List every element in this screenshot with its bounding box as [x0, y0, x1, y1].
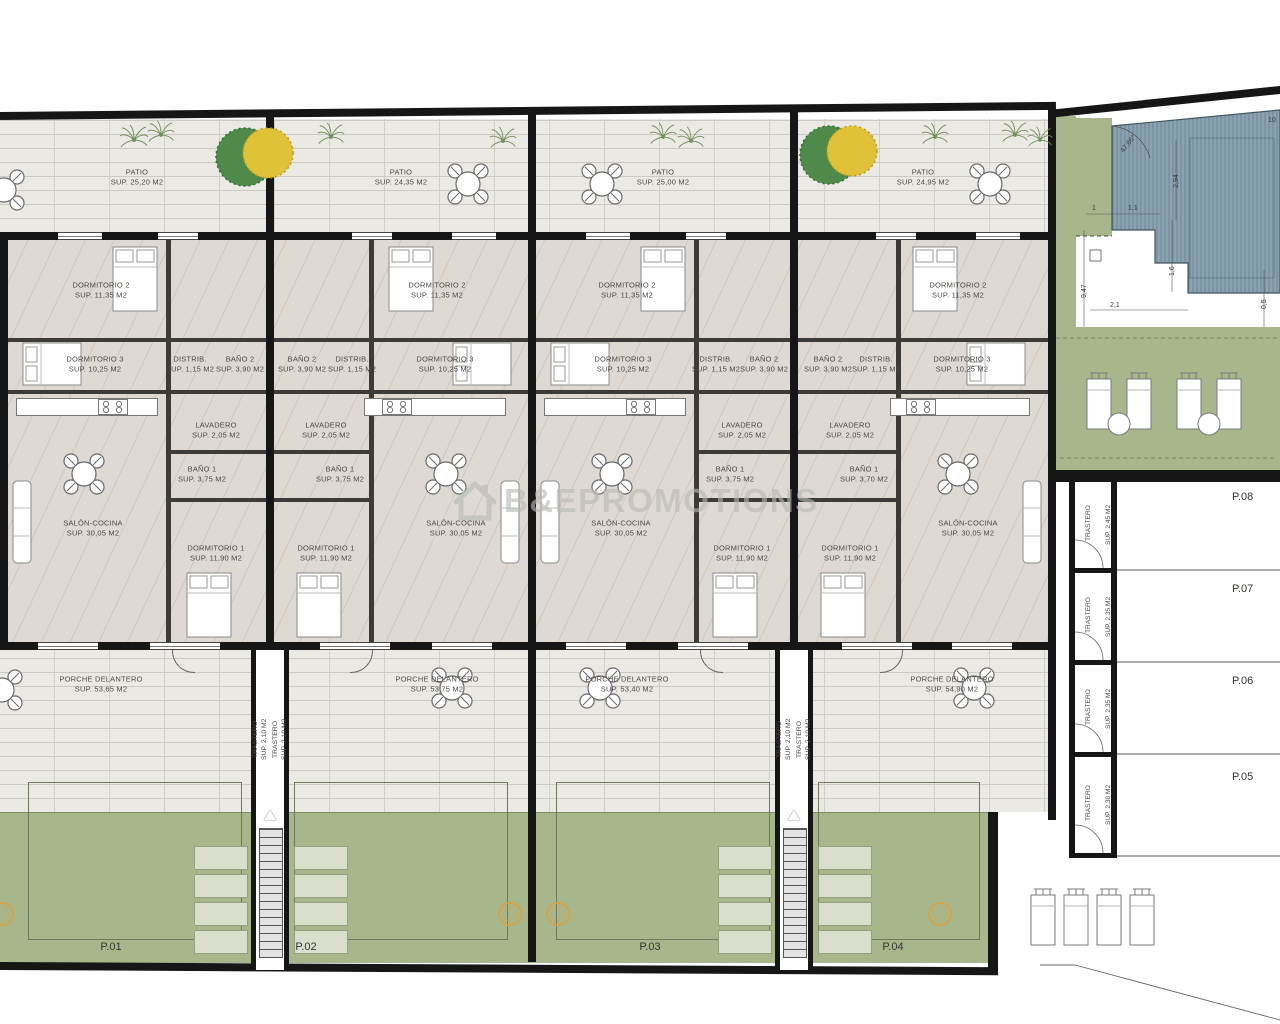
- plot-boundary-diagonal: [1075, 965, 1280, 1020]
- wall-u1-h2: [8, 390, 171, 394]
- window-u3-porch-1: [566, 642, 626, 650]
- storage-label-stair1-b: TRASTEROSUP. 2,10 M2: [271, 664, 289, 814]
- bed-icon: [388, 246, 434, 312]
- green-strip-top: [1076, 118, 1112, 236]
- kitchen-counter: [16, 398, 158, 416]
- room-label-salon-u4: SALÓN-COCINASUP. 30,05 M2: [938, 518, 998, 538]
- planter-box: [194, 874, 248, 898]
- window-u2-patio-1: [352, 232, 392, 240]
- sun-lounger-icon: [1064, 889, 1088, 945]
- dim-pool-step: 1,6: [1169, 266, 1176, 276]
- wall-left-edge: [0, 232, 8, 650]
- wall-u4-h5: [798, 450, 896, 454]
- room-label-dorm3-u2: DORMITORIO 3SUP. 10,25 M2: [416, 354, 473, 374]
- wall-storage-div3: [1069, 752, 1117, 757]
- window-u3-patio-2: [686, 232, 726, 240]
- dim-offset-one-one: 1,1: [1128, 205, 1138, 212]
- wall-storage-div1: [1069, 568, 1117, 573]
- room-label-bano2-u3: BAÑO 2SUP. 3,90 M2: [740, 354, 788, 374]
- plot-label-p02: P.02: [295, 941, 316, 953]
- right-zone: 10 47,66° 2,94 1 1,1 1,6 9,47 2,1 0,5 9,…: [1000, 80, 1280, 1024]
- storage-label-stair2-a: TRASTEROSUP. 2,10 M2: [775, 664, 793, 814]
- room-label-patio-u2: PATIOSUP. 24,35 M2: [375, 167, 428, 187]
- kitchen-counter: [544, 398, 686, 416]
- wall-core-u2: [369, 240, 374, 642]
- stove-icon: [98, 399, 128, 415]
- sun-lounger-icon: [1217, 373, 1241, 429]
- sofa-icon: [12, 480, 32, 564]
- room-label-patio-u3: PATIOSUP. 25,00 M2: [637, 167, 690, 187]
- bed-icon: [912, 246, 958, 312]
- wall-bottom: [0, 962, 998, 975]
- palm-icon: [146, 120, 176, 150]
- stairwell-2: TRASTEROSUP. 2,10 M2 TRASTEROSUP. 2,10 M…: [775, 650, 813, 970]
- room-label-distrib-u4: DISTRIB.SUP. 1,15 M2: [852, 354, 900, 374]
- palm-icon: [488, 126, 518, 156]
- room-label-lavadero-u1: LAVADEROSUP. 2,05 M2: [192, 420, 240, 440]
- wall-storage-top: [1048, 470, 1280, 482]
- dim-side-width: 2,1: [1110, 302, 1120, 309]
- planter-box: [194, 930, 248, 954]
- window-u1-patio-2: [158, 232, 198, 240]
- room-label-distrib-u2: DISTRIB.SUP. 1,15 M2: [328, 354, 376, 374]
- bed-icon: [186, 572, 232, 638]
- wall-u3-h2: [536, 390, 699, 394]
- stove-icon: [382, 399, 412, 415]
- wall-u1-h4: [166, 390, 266, 394]
- dining-table-icon: [62, 452, 106, 496]
- wall-core-u1: [166, 240, 171, 642]
- window-u2-porch-1: [320, 642, 390, 650]
- wall-garden-right: [988, 812, 998, 968]
- room-label-distrib-u3: DISTRIB.SUP. 1,15 M2: [692, 354, 740, 374]
- bed-icon: [112, 246, 158, 312]
- window-u1-patio-1: [58, 232, 102, 240]
- dim-side-depth: 9,47: [1081, 284, 1088, 298]
- sun-lounger-icon: [1087, 373, 1111, 429]
- storage-sup-p05: SUP. 2,30 M2: [1105, 784, 1112, 825]
- wall-core-u3: [694, 240, 699, 642]
- wall-unit-divider-1: [266, 114, 274, 642]
- room-label-dorm3-u1: DORMITORIO 3SUP. 10,25 M2: [66, 354, 123, 374]
- stove-icon: [906, 399, 936, 415]
- window-u1-porch-1: [38, 642, 98, 650]
- sun-lounger-icon: [1127, 373, 1151, 429]
- palm-icon: [1026, 126, 1054, 154]
- room-label-dorm2-u1: DORMITORIO 2SUP. 11,35 M2: [72, 280, 129, 300]
- room-label-dorm1-u4: DORMITORIO 1SUP. 11,90 M2: [821, 543, 878, 563]
- room-label-dorm1-u3: DORMITORIO 1SUP. 11,90 M2: [713, 543, 770, 563]
- planter-box: [294, 846, 348, 870]
- room-label-porche-u4: PORCHE DELANTEROSUP. 54,90 M2: [910, 674, 993, 694]
- sofa-icon: [1022, 480, 1042, 564]
- palm-icon: [316, 122, 346, 152]
- room-label-bano2-u2: BAÑO 2SUP. 3,90 M2: [278, 354, 326, 374]
- wall-u2-h6: [274, 498, 374, 502]
- planter-box: [718, 874, 772, 898]
- patio-table-icon: [580, 162, 624, 206]
- storage-label-stair2-b: TRASTEROSUP. 2,10 M2: [795, 664, 813, 814]
- side-table-icon: [1108, 413, 1130, 435]
- dining-table-icon: [936, 452, 980, 496]
- planter-box: [818, 874, 872, 898]
- room-label-dorm1-u1: DORMITORIO 1SUP. 11,90 M2: [187, 543, 244, 563]
- room-label-distrib-u1: DISTRIB.SUP. 1,15 M2: [166, 354, 214, 374]
- room-label-bano1-u1: BAÑO 1SUP. 3,75 M2: [178, 464, 226, 484]
- wall-u1-h3: [166, 338, 266, 342]
- storage-sup-p08: SUP. 2,45 M2: [1105, 504, 1112, 545]
- palm-icon: [648, 122, 678, 152]
- room-label-porche-u1: PORCHE DELANTEROSUP. 53,65 M2: [59, 674, 142, 694]
- room-label-dorm1-u2: DORMITORIO 1SUP. 11,90 M2: [297, 543, 354, 563]
- wall-u2-h2: [374, 390, 528, 394]
- room-label-lavadero-u2: LAVADEROSUP. 2,05 M2: [302, 420, 350, 440]
- wall-storage-bottom: [1069, 853, 1117, 858]
- planter-box: [294, 902, 348, 926]
- planter-box: [718, 930, 772, 954]
- storage-sup-p06: SUP. 2,35 M2: [1105, 688, 1112, 729]
- planter-box: [818, 902, 872, 926]
- garden-marker-icon: [928, 902, 952, 926]
- room-label-salon-u3: SALÓN-COCINASUP. 30,05 M2: [591, 518, 651, 538]
- porch-table-icon: [0, 668, 24, 712]
- storage-name-p07: TRASTERO: [1085, 597, 1092, 633]
- window-u3-porch-2: [678, 642, 748, 650]
- room-label-lavadero-u3: LAVADEROSUP. 2,05 M2: [718, 420, 766, 440]
- window-u3-patio-1: [586, 232, 630, 240]
- wall-u4-h6: [798, 498, 896, 502]
- dining-table-icon: [424, 452, 468, 496]
- planter-box: [818, 930, 872, 954]
- sun-lounger-icon: [1177, 373, 1201, 429]
- wall-u3-h3: [694, 338, 790, 342]
- room-label-bano1-u3: BAÑO 1SUP. 3,75 M2: [706, 464, 754, 484]
- wall-u3-h5: [694, 450, 790, 454]
- plot-label-p01: P.01: [100, 941, 121, 953]
- window-u4-porch-2: [952, 642, 1012, 650]
- sofa-icon: [540, 480, 560, 564]
- garden-marker-icon: [498, 902, 522, 926]
- wall-u4-h3: [798, 338, 896, 342]
- room-label-dorm3-u3: DORMITORIO 3SUP. 10,25 M2: [594, 354, 651, 374]
- garden-marker-icon: [546, 902, 570, 926]
- window-u4-patio-1: [876, 232, 916, 240]
- sun-lounger-icon: [1130, 889, 1154, 945]
- bed-icon: [820, 572, 866, 638]
- planter-box: [718, 846, 772, 870]
- tree-icon: [796, 118, 880, 190]
- sofa-icon: [500, 480, 520, 564]
- room-label-dorm3-u4: DORMITORIO 3SUP. 10,25 M2: [933, 354, 990, 374]
- room-label-lavadero-u4: LAVADEROSUP. 2,05 M2: [826, 420, 874, 440]
- plot-label-p06: P.06: [1232, 675, 1253, 687]
- plot-label-p07: P.07: [1232, 583, 1253, 595]
- window-u1-porch-2: [150, 642, 220, 650]
- wall-u4-h4: [798, 390, 896, 394]
- palm-icon: [920, 122, 950, 152]
- planter-box: [718, 902, 772, 926]
- wall-u1-h6: [166, 498, 266, 502]
- planter-box: [194, 902, 248, 926]
- stove-icon: [626, 399, 656, 415]
- bed-icon: [296, 572, 342, 638]
- palm-icon: [676, 126, 706, 156]
- wall-storage-div2: [1069, 660, 1117, 665]
- planter-box: [294, 874, 348, 898]
- wall-u1-h5: [166, 450, 266, 454]
- wall-u2-h5: [274, 450, 374, 454]
- room-label-dorm2-u2: DORMITORIO 2SUP. 11,35 M2: [408, 280, 465, 300]
- room-label-bano2-u4: BAÑO 2SUP. 3,90 M2: [804, 354, 852, 374]
- storage-name-p08: TRASTERO: [1085, 505, 1092, 541]
- room-label-salon-u1: SALÓN-COCINASUP. 30,05 M2: [63, 518, 123, 538]
- wall-u3-h4: [694, 390, 790, 394]
- pocket-square: [1090, 250, 1101, 261]
- room-label-bano1-u2: BAÑO 1SUP. 3,75 M2: [316, 464, 364, 484]
- bed-icon: [712, 572, 758, 638]
- dim-offset-one: 1: [1092, 205, 1096, 212]
- patio-table-icon: [446, 162, 490, 206]
- plot-label-p05: P.05: [1232, 771, 1253, 783]
- room-label-porche-u2: PORCHE DELANTEROSUP. 53,75 M2: [395, 674, 478, 694]
- room-label-dorm2-u4: DORMITORIO 2SUP. 11,35 M2: [929, 280, 986, 300]
- patio-table-icon: [0, 168, 26, 212]
- planter-box: [194, 846, 248, 870]
- wall-u3-h6: [694, 498, 790, 502]
- room-label-salon-u2: SALÓN-COCINASUP. 30,05 M2: [426, 518, 486, 538]
- stair-treads: [259, 828, 283, 958]
- sun-lounger-icon: [1097, 889, 1121, 945]
- storage-sup-p07: SUP. 2,35 M2: [1105, 596, 1112, 637]
- storage-name-p06: TRASTERO: [1085, 689, 1092, 725]
- sun-lounger-icon: [1031, 889, 1055, 945]
- stairwell-1: TRASTEROSUP. 2,10 M2 TRASTEROSUP. 2,10 M…: [251, 650, 289, 970]
- planter-box: [818, 846, 872, 870]
- window-u4-porch-1: [842, 642, 912, 650]
- plot-label-p03: P.03: [639, 941, 660, 953]
- room-label-patio-u4: PATIOSUP. 24,95 M2: [897, 167, 950, 187]
- room-label-bano2-u1: BAÑO 2SUP. 3,90 M2: [216, 354, 264, 374]
- plot-label-p08: P.08: [1232, 491, 1253, 503]
- storage-name-p05: TRASTERO: [1085, 785, 1092, 821]
- wall-core-u4: [896, 240, 901, 642]
- room-label-bano1-u4: BAÑO 1SUP. 3,70 M2: [840, 464, 888, 484]
- storage-label-stair1-a: TRASTEROSUP. 2,10 M2: [251, 664, 269, 814]
- room-label-patio-u1: PATIOSUP. 25,20 M2: [111, 167, 164, 187]
- patio-table-icon: [968, 162, 1012, 206]
- bed-icon: [640, 246, 686, 312]
- wall-u2-h4: [274, 390, 374, 394]
- side-table-icon: [1198, 413, 1220, 435]
- window-u4-patio-2: [976, 232, 1020, 240]
- wall-storage-left: [1069, 482, 1075, 858]
- stair-treads: [783, 828, 807, 958]
- room-label-porche-u3: PORCHE DELANTEROSUP. 53,40 M2: [585, 674, 668, 694]
- dim-edge-gap: 0,5: [1261, 299, 1268, 309]
- wall-u2-h3: [274, 338, 374, 342]
- plot-label-p04: P.04: [882, 941, 903, 953]
- window-u2-porch-2: [432, 642, 492, 650]
- tree-icon: [212, 120, 296, 192]
- dining-table-icon: [590, 452, 634, 496]
- floor-plan: PATIOSUP. 25,20 M2 DORMITORIO 2SUP. 11,3…: [0, 0, 1280, 1024]
- dim-pool-width: 2,94: [1173, 174, 1180, 188]
- window-u2-patio-2: [452, 232, 496, 240]
- room-label-dorm2-u3: DORMITORIO 2SUP. 11,35 M2: [598, 280, 655, 300]
- dim-top-right: 10: [1268, 117, 1276, 124]
